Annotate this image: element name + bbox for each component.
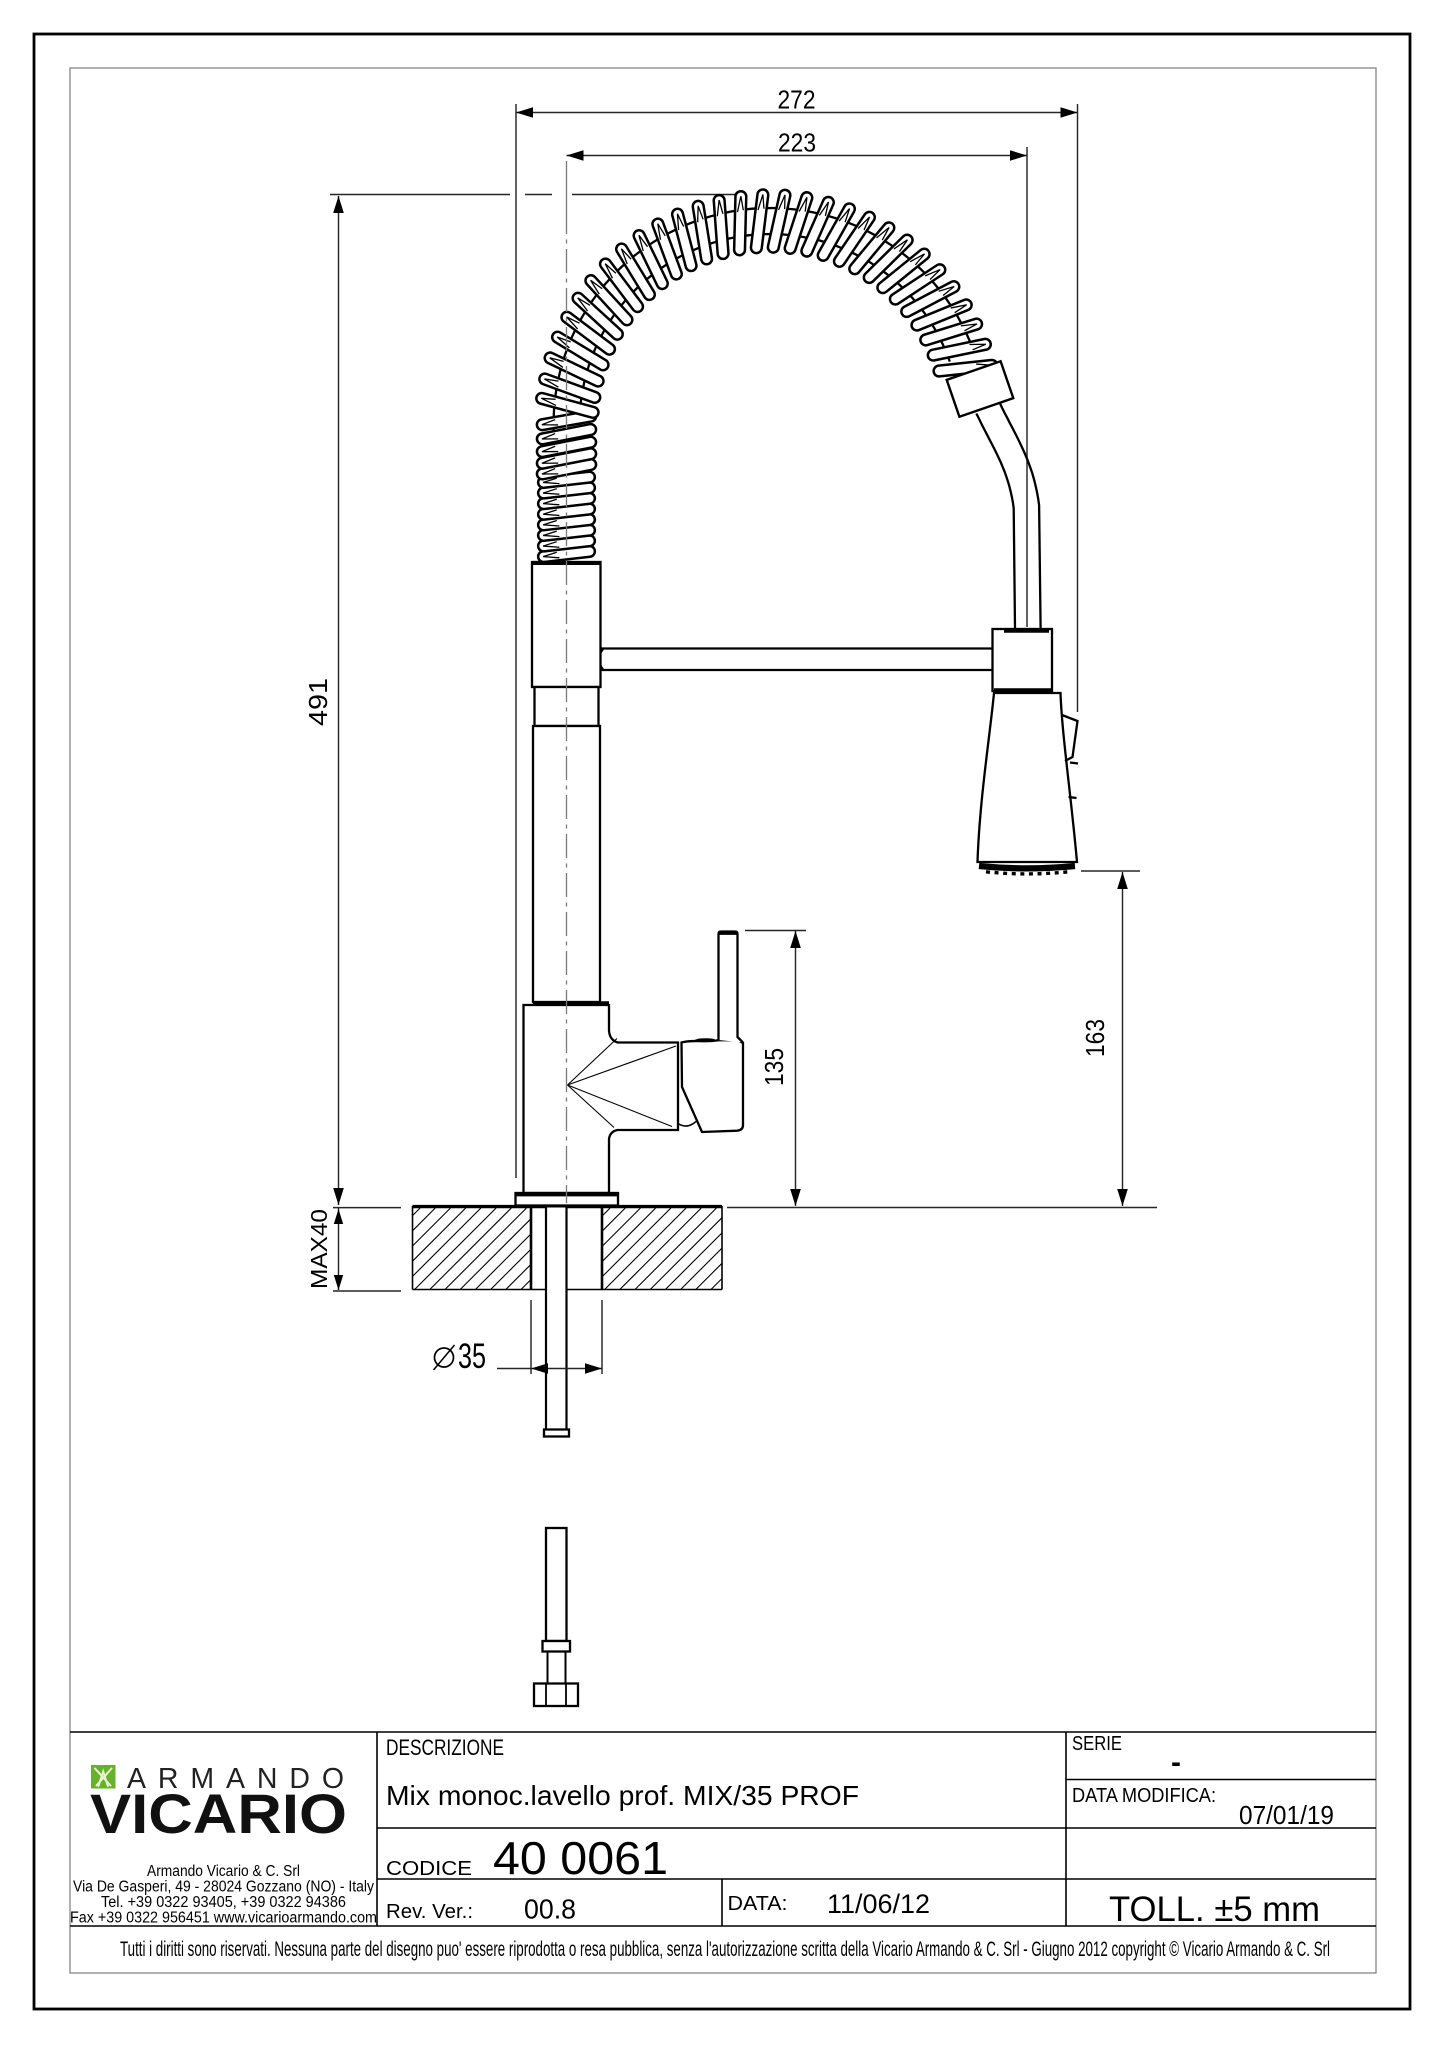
svg-text:135: 135 [759, 1048, 789, 1086]
svg-text:DATA MODIFICA:: DATA MODIFICA: [1072, 1785, 1216, 1807]
svg-text:35: 35 [458, 1337, 486, 1376]
svg-text:Rev. Ver.:: Rev. Ver.: [386, 1901, 473, 1923]
svg-text:Tel. +39 0322 93405, +39 0322: Tel. +39 0322 93405, +39 0322 94386 [101, 1894, 346, 1911]
svg-text:Mix monoc.lavello prof. MIX/35: Mix monoc.lavello prof. MIX/35 PROF [386, 1780, 859, 1811]
svg-text:SERIE: SERIE [1072, 1733, 1122, 1755]
svg-text:DESCRIZIONE: DESCRIZIONE [386, 1735, 504, 1760]
svg-text:40 0061: 40 0061 [493, 1832, 668, 1884]
svg-text:Fax +39 0322 956451 www.vicari: Fax +39 0322 956451 www.vicarioarmando.c… [70, 1910, 377, 1927]
svg-text:CODICE: CODICE [386, 1858, 472, 1880]
svg-text:272: 272 [778, 85, 816, 115]
svg-text:Via De Gasperi, 49 - 28024 Goz: Via De Gasperi, 49 - 28024 Gozzano (NO) … [73, 1879, 374, 1896]
svg-text:-: - [1171, 1746, 1181, 1779]
svg-text:Armando Vicario & C. Srl: Armando Vicario & C. Srl [147, 1863, 300, 1880]
svg-text:MAX40: MAX40 [306, 1209, 332, 1289]
svg-text:VICARIO: VICARIO [90, 1782, 347, 1845]
svg-text:491: 491 [303, 678, 333, 726]
svg-text:11/06/12: 11/06/12 [827, 1889, 930, 1919]
svg-text:00.8: 00.8 [524, 1894, 576, 1925]
svg-text:TOLL. ±5 mm: TOLL. ±5 mm [1109, 1890, 1320, 1929]
svg-text:223: 223 [778, 128, 816, 158]
svg-text:07/01/19: 07/01/19 [1239, 1800, 1334, 1830]
svg-text:Tutti i diritti sono riservati: Tutti i diritti sono riservati. Nessuna … [120, 1938, 1330, 1961]
svg-text:DATA:: DATA: [728, 1893, 788, 1915]
svg-text:163: 163 [1080, 1019, 1110, 1057]
